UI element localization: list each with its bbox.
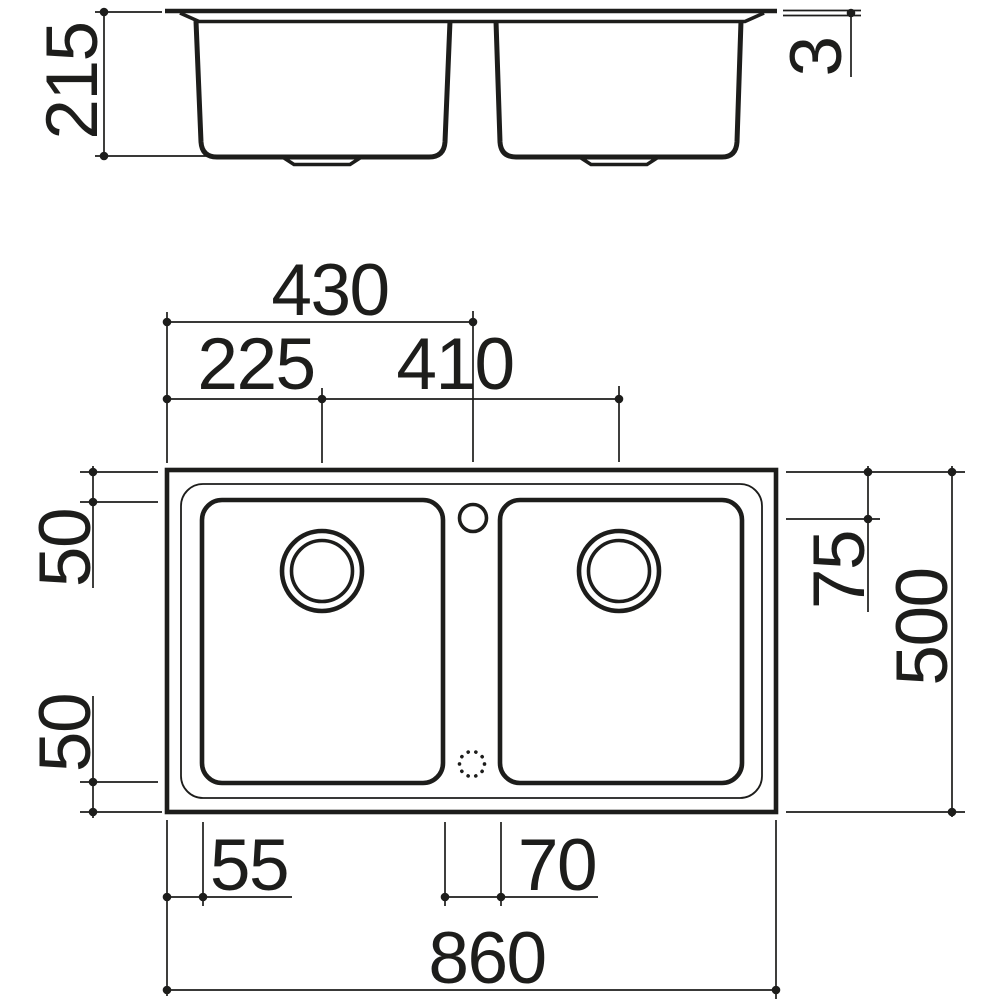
front-rim-underside-line bbox=[180, 13, 764, 22]
dim-dot bbox=[100, 152, 109, 161]
dim-dot bbox=[948, 468, 957, 477]
dim-dot bbox=[100, 8, 109, 17]
plan-right-drain-inner bbox=[589, 541, 650, 602]
dim-plan-drains-225-410: 225 410 bbox=[163, 324, 624, 463]
dim-dot bbox=[772, 986, 781, 995]
dim-dot bbox=[89, 468, 98, 477]
plan-left-drain-outer bbox=[282, 531, 362, 611]
plan-view: 430 225 410 50 5 bbox=[25, 250, 965, 999]
dim-front-rim-thickness: 3 bbox=[776, 9, 861, 77]
dim-label-50-bottom: 50 bbox=[25, 694, 106, 772]
dim-plan-left-top-50: 50 bbox=[25, 466, 158, 588]
dim-label-500: 500 bbox=[882, 568, 963, 685]
dim-label-215: 215 bbox=[32, 22, 113, 139]
dim-dot bbox=[864, 515, 873, 524]
dim-dot bbox=[89, 808, 98, 817]
plan-left-bowl bbox=[202, 500, 443, 783]
front-left-bowl-profile bbox=[196, 21, 450, 157]
front-elevation-view: 215 3 bbox=[32, 8, 861, 165]
dim-dot bbox=[847, 9, 856, 18]
dim-dot bbox=[89, 498, 98, 507]
dim-label-410: 410 bbox=[396, 324, 513, 405]
dim-label-75: 75 bbox=[799, 531, 880, 609]
dim-dot bbox=[163, 986, 172, 995]
dim-dot bbox=[163, 318, 172, 327]
plan-left-drain-inner bbox=[292, 541, 353, 602]
front-right-bowl-profile bbox=[496, 21, 741, 157]
dim-dot bbox=[163, 395, 172, 404]
dim-label-225: 225 bbox=[197, 324, 314, 405]
dim-label-430: 430 bbox=[271, 250, 388, 331]
plan-tap-hole bbox=[460, 505, 487, 532]
dim-label-70: 70 bbox=[518, 825, 596, 906]
dim-plan-left-bottom-50: 50 bbox=[25, 694, 162, 818]
dim-dot bbox=[948, 808, 957, 817]
plan-right-drain-outer bbox=[579, 531, 659, 611]
plan-outer-edge bbox=[167, 470, 776, 812]
dim-dot bbox=[441, 893, 450, 902]
dim-dot bbox=[199, 893, 208, 902]
sink-technical-drawing: 215 3 bbox=[0, 0, 1000, 1000]
dim-label-860: 860 bbox=[428, 918, 545, 999]
dim-dot bbox=[318, 395, 327, 404]
dim-dot bbox=[497, 893, 506, 902]
dim-label-50-top: 50 bbox=[25, 509, 106, 587]
dim-dot bbox=[615, 395, 624, 404]
plan-knockout-hole-dotted bbox=[460, 752, 485, 777]
plan-right-bowl bbox=[500, 500, 742, 783]
dim-dot bbox=[89, 778, 98, 787]
dim-plan-bottom-55: 55 bbox=[163, 822, 292, 906]
dim-plan-bottom-70: 70 bbox=[441, 822, 598, 906]
dim-dot bbox=[864, 468, 873, 477]
dim-label-55: 55 bbox=[210, 825, 288, 906]
dim-label-3: 3 bbox=[776, 37, 857, 76]
dim-front-depth: 215 bbox=[32, 8, 210, 161]
drawing-canvas: 215 3 bbox=[0, 0, 1000, 1000]
